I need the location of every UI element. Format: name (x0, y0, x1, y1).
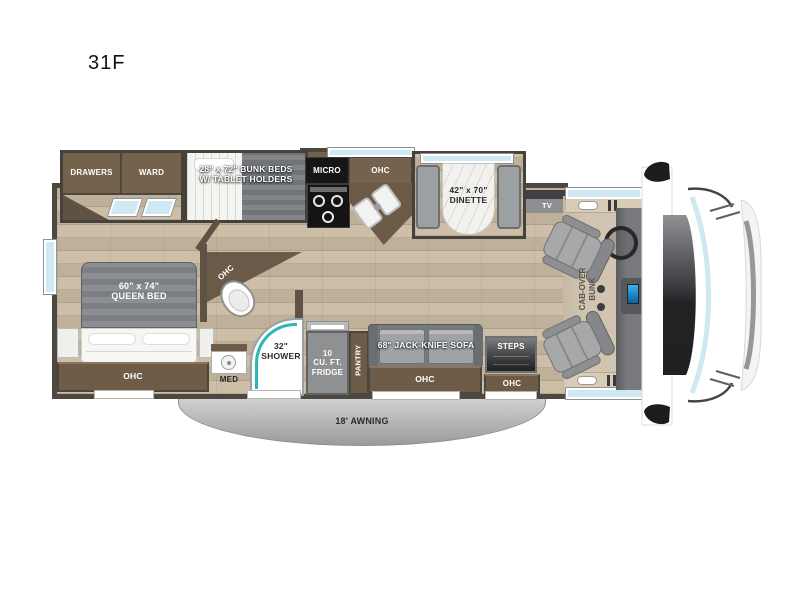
drawers-cabinet: DRAWERS WARD (63, 153, 181, 195)
ward-label: WARD (122, 168, 181, 177)
bed-ohc-label: OHC (123, 372, 143, 382)
bed-ohc: OHC (57, 362, 209, 392)
cab-front-exterior (638, 145, 778, 475)
sofa-label: 68" JACK-KNIFE SOFA (369, 341, 483, 351)
dinette-table: 42" x 70" DINETTE (442, 163, 495, 235)
door-hinge (608, 200, 611, 211)
dinette-window (421, 154, 513, 163)
door-hinge (607, 375, 610, 386)
step-line (493, 356, 529, 357)
pillow (142, 333, 190, 345)
baggage-door (486, 392, 536, 399)
bunk-label: 28" x 72" BUNK BEDS W/ TABLET HOLDERS (187, 165, 305, 185)
windshield (663, 215, 696, 375)
pillow (88, 333, 136, 345)
sofa-ohc: OHC (368, 366, 482, 394)
slide-corner-wedge (63, 195, 109, 220)
vanity-counter (211, 344, 247, 351)
bunk-bed-slideout: 28" x 72" BUNK BEDS W/ TABLET HOLDERS (184, 150, 308, 223)
sink-drain (227, 361, 231, 365)
baggage-door (95, 391, 153, 398)
pantry-label: PANTRY (355, 338, 364, 382)
burner (313, 195, 325, 207)
range-vent (310, 187, 347, 192)
burner (331, 195, 343, 207)
burner (322, 211, 334, 223)
drawers-label: DRAWERS (63, 168, 120, 177)
hood-detail-line (710, 204, 740, 219)
dinette-label: 42" x 70" DINETTE (437, 186, 500, 206)
tv-label: TV (526, 202, 568, 211)
awning-label: 18' AWNING (179, 416, 545, 426)
fridge-label: 10 CU. FT. FRIDGE (312, 349, 343, 377)
bath-wall (200, 244, 207, 322)
cooktop (307, 184, 350, 228)
steps-label: STEPS (487, 342, 535, 351)
awning: 18' AWNING (178, 394, 546, 446)
floorplan-title: 31F (88, 52, 125, 75)
sofa-ohc-label: OHC (415, 375, 435, 385)
queen-mattress: 60" x 74" QUEEN BED (81, 262, 197, 328)
shower-label: 32" SHOWER (260, 342, 302, 362)
cab-over-bunk-label: CAB-OVER BUNK (576, 259, 600, 319)
baggage-door (248, 391, 300, 398)
jack-knife-sofa: 68" JACK-KNIFE SOFA (368, 324, 482, 367)
floorplan-canvas: 31F 18' AWNING DRAWERS WARD 28" x 72" BU… (0, 0, 800, 600)
door-handle (578, 201, 598, 210)
kitchen-window (328, 148, 414, 157)
bedroom-slide-window (142, 199, 176, 216)
bath-sink (211, 351, 247, 374)
fridge: 10 CU. FT. FRIDGE (306, 331, 349, 395)
kitchen-ohc-label: OHC (350, 166, 411, 175)
tv-cabinet: TV (526, 199, 568, 213)
dinette-bench (497, 165, 521, 229)
queen-bed-label: 60" x 74" QUEEN BED (82, 281, 196, 302)
dinette-slideout: 42" x 70" DINETTE (412, 151, 526, 239)
kitchen-ohc: OHC (349, 157, 412, 184)
bedroom-slide-window (108, 199, 142, 216)
bedroom-slideout: DRAWERS WARD (60, 150, 184, 223)
entry-ohc: OHC (484, 374, 540, 394)
door-handle (577, 376, 597, 385)
toilet-lid (224, 285, 254, 316)
step-line (493, 364, 529, 365)
side-mirror-icon (644, 162, 670, 182)
nightstand (57, 328, 79, 358)
hood-detail-line (710, 371, 740, 386)
queen-bed: 60" x 74" QUEEN BED (81, 262, 197, 363)
rear-wall-window (44, 240, 56, 294)
fridge-top (306, 321, 349, 331)
entry-ohc-label: OHC (503, 379, 521, 388)
entry-steps: STEPS (485, 336, 537, 373)
micro-label: MICRO (306, 166, 348, 175)
queen-bedding (81, 328, 197, 363)
microwave: MICRO (305, 157, 349, 184)
blanket-fold (86, 351, 192, 352)
driver-door-window (566, 188, 642, 199)
med-label: MED (211, 375, 247, 384)
baggage-door (373, 392, 459, 399)
fridge-top-line (311, 325, 344, 329)
